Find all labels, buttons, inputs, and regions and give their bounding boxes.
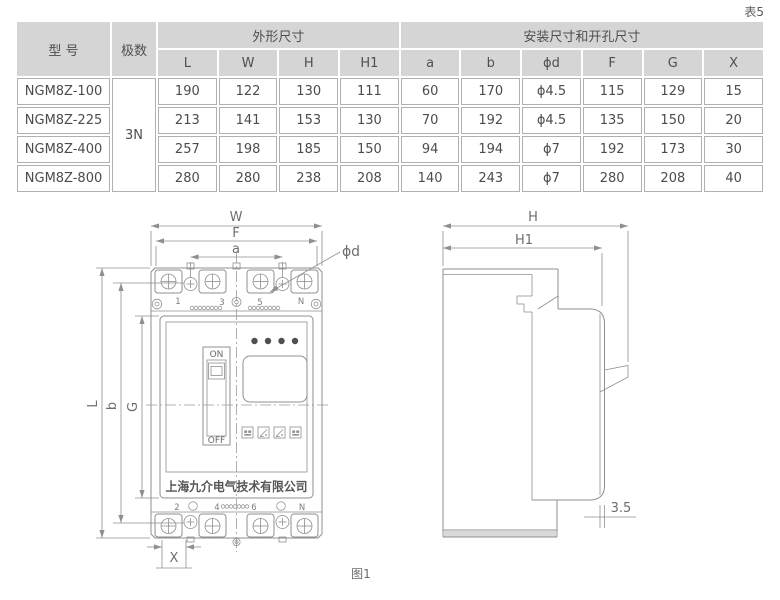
panel-button-1 [242,427,253,438]
col-header-G: G [644,50,703,76]
dim-cell: 243 [461,165,520,192]
vent-dots [190,306,280,310]
dim-cell: 94 [401,136,460,163]
col-header-H1: H1 [340,50,399,76]
table-number-label: 表5 [744,3,764,20]
dim-label-phid: ϕd [342,244,360,260]
terminal-number: 6 [251,503,256,513]
dim-cell: 198 [219,136,278,163]
led-indicator-icon [265,338,271,344]
dim-label-x: X [170,551,179,566]
terminal-number: 4 [214,503,219,513]
dim-label-h: H [528,210,538,225]
model-cell: NGM8Z-100 [17,78,110,105]
col-header-a: a [401,50,460,76]
terminal-number: N [299,503,305,513]
switch-off-label: OFF [208,436,225,446]
screw-terminal-icon [253,274,268,289]
brand-label: 上海九介电气技术有限公司 [166,479,308,494]
side-profile [443,269,628,537]
dim-cell: 192 [461,107,520,134]
screw-terminal-icon [161,519,176,534]
led-indicator-icon [292,338,298,344]
mounting-screw-icon [184,516,197,529]
lcd-display [243,356,307,402]
screw-terminal-icon [161,274,176,289]
dim-cell: 20 [704,107,763,134]
panel-button-4 [290,427,301,438]
dim-cell: 115 [583,78,642,105]
dimension-spec-table: 型 号 极数 外形尺寸 安装尺寸和开孔尺寸 L W H H1 a b ϕd F … [15,20,765,194]
led-indicator-icon [278,338,284,344]
dim-cell: 60 [401,78,460,105]
model-cell: NGM8Z-225 [17,107,110,134]
dim-cell: 257 [158,136,217,163]
screw-terminal-icon [205,274,220,289]
dimension-G: G [126,316,159,498]
terminal-number: 1 [175,297,180,307]
panel-button-3 [274,427,285,438]
dim-cell: 141 [219,107,278,134]
dim-cell: 140 [401,165,460,192]
screw-terminal-icon [253,519,268,534]
model-cell: NGM8Z-400 [17,136,110,163]
switch-on-label: ON [210,350,224,360]
dim-cell: 70 [401,107,460,134]
toggle-switch: ON OFF [203,347,230,446]
dim-cell: 213 [158,107,217,134]
case-notch [517,296,532,312]
col-header-phid: ϕd [522,50,581,76]
panel-buttons [242,427,301,438]
dim-label-b: b [105,402,120,410]
col-header-b: b [461,50,520,76]
poles-cell: 3N [112,78,156,192]
side-view: H H1 [443,210,636,537]
dim-cell: 280 [219,165,278,192]
dim-cell: 150 [644,107,703,134]
led-indicators [251,338,298,344]
col-header-model: 型 号 [17,22,110,76]
dim-cell: 173 [644,136,703,163]
dim-label-a: a [232,242,240,257]
dim-cell: ϕ4.5 [522,107,581,134]
dim-cell: 192 [583,136,642,163]
dim-cell: 208 [340,165,399,192]
dim-cell: 185 [279,136,338,163]
col-header-W: W [219,50,278,76]
dim-cell: 40 [704,165,763,192]
dim-cell: 280 [158,165,217,192]
dim-cell: 129 [644,78,703,105]
dim-cell: 190 [158,78,217,105]
dim-cell: 153 [279,107,338,134]
figure-caption: 图1 [351,567,371,581]
model-cell: NGM8Z-800 [17,165,110,192]
group-header-mount-dims: 安装尺寸和开孔尺寸 [401,22,763,48]
dim-cell: ϕ7 [522,165,581,192]
dim-cell: 130 [340,107,399,134]
dim-cell: 30 [704,136,763,163]
table-header-row-groups: 型 号 极数 外形尺寸 安装尺寸和开孔尺寸 [17,22,763,48]
col-header-poles: 极数 [112,22,156,76]
col-header-H: H [279,50,338,76]
led-indicator-icon [251,338,257,344]
dimension-3.5: 3.5 [584,501,636,528]
screw-terminal-icon [297,519,312,534]
terminal-number: 2 [174,503,179,513]
dim-cell: 170 [461,78,520,105]
screw-terminal-icon [297,274,312,289]
mounting-screw-icon [276,516,289,529]
rear-mounting-face [532,309,605,500]
terminal-number: N [298,297,304,307]
col-header-L: L [158,50,217,76]
dim-label-l: L [86,400,101,408]
screw-terminal-icon [205,519,220,534]
dim-label-f: F [232,226,239,241]
group-header-outline-dims: 外形尺寸 [158,22,399,48]
dim-cell: 135 [583,107,642,134]
dimension-X: X [147,540,201,568]
dim-cell: 238 [279,165,338,192]
dim-cell: 208 [644,165,703,192]
datasheet-page: 表5 型 号 极数 外形尺寸 安装尺寸和开孔尺寸 L W H H1 a b ϕd… [0,0,780,600]
figure-1-drawing: W F a ϕd L [0,200,780,600]
vent-dots [221,505,249,509]
dim-label-g: G [126,402,141,412]
mounting-screw-icon [184,278,197,291]
col-header-F: F [583,50,642,76]
panel-button-2 [258,427,269,438]
col-header-X: X [704,50,763,76]
hole-icon [277,502,286,511]
dim-label-w: W [230,210,243,225]
dim-cell: 15 [704,78,763,105]
dim-cell: ϕ4.5 [522,78,581,105]
dim-cell: 122 [219,78,278,105]
dim-cell: 130 [279,78,338,105]
front-view: W F a ϕd L [86,210,360,568]
dim-cell: ϕ7 [522,136,581,163]
dim-label-h1: H1 [515,233,533,248]
table-row: NGM8Z-100 3N 190 122 130 111 60 170 ϕ4.5… [17,78,763,105]
hole-icon [189,502,198,511]
dim-cell: 194 [461,136,520,163]
dim-cell: 280 [583,165,642,192]
mounting-screw-icon [276,278,289,291]
dim-cell: 150 [340,136,399,163]
dim-cell: 111 [340,78,399,105]
dim-label-offset: 3.5 [611,501,632,516]
